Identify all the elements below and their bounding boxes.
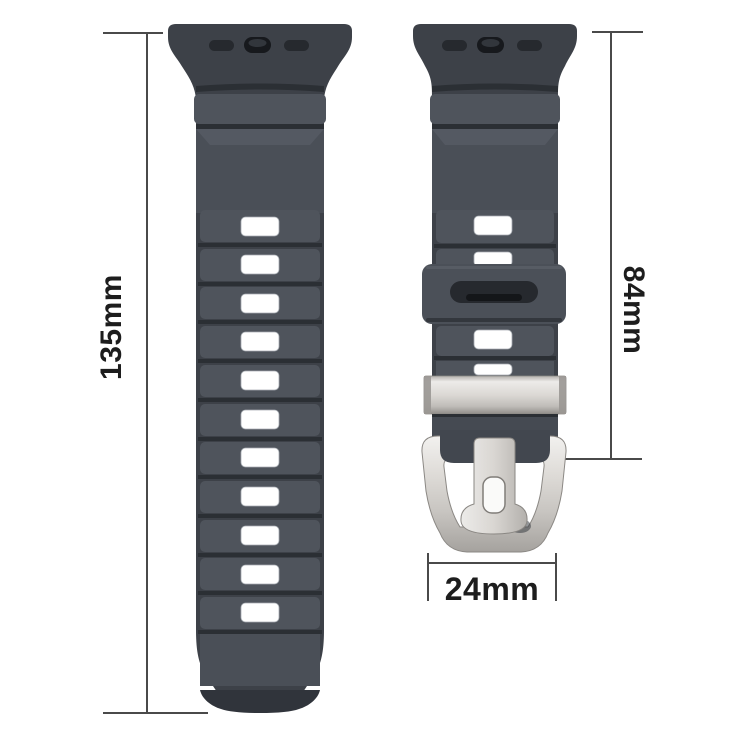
- strap-hole: [241, 255, 279, 274]
- strap-hole-partial: [474, 364, 512, 375]
- segment-groove: [434, 356, 556, 360]
- long-strap: [168, 24, 352, 713]
- rubber-keeper: [422, 264, 566, 324]
- strap-hole: [241, 565, 279, 584]
- strap-hole: [474, 330, 512, 349]
- strap-tip-edge: [200, 690, 320, 713]
- upper-panel-bevel: [196, 129, 324, 145]
- strap-hole: [241, 217, 279, 236]
- lug-slot-icon: [442, 40, 467, 51]
- long-strap-length-label: 135mm: [94, 242, 130, 412]
- strap-tip: [200, 634, 320, 686]
- segment-groove: [434, 244, 556, 248]
- metal-keeper: [424, 376, 566, 414]
- strap-hole: [474, 216, 512, 235]
- short-strap-length-label: 84mm: [615, 235, 651, 385]
- strap-hole: [241, 332, 279, 351]
- tang-slot-icon: [483, 477, 505, 513]
- band-width-label: 24mm: [412, 571, 572, 607]
- strap-hole: [241, 294, 279, 313]
- buckle: [422, 430, 566, 552]
- lug-slot-icon: [517, 40, 542, 51]
- lug-slot-icon: [284, 40, 309, 51]
- product-diagram: 135mm 84mm 24mm: [0, 0, 750, 750]
- neck-groove: [432, 124, 558, 129]
- lug-center-hole-shine: [249, 39, 267, 47]
- strap-hole: [241, 448, 279, 467]
- strap-hole-partial: [474, 252, 512, 266]
- lug-slot-icon: [209, 40, 234, 51]
- neck-ridge: [194, 94, 326, 124]
- strap-segments: [198, 210, 322, 634]
- neck-groove: [196, 124, 324, 129]
- keeper-shadow: [432, 414, 558, 417]
- upper-panel-bevel: [432, 129, 558, 145]
- short-strap: [413, 24, 577, 552]
- strap-hole: [241, 487, 279, 506]
- neck-ridge: [430, 94, 560, 124]
- strap-hole: [241, 410, 279, 429]
- strap-hole: [241, 603, 279, 622]
- strap-hole: [241, 371, 279, 390]
- strap-hole: [241, 526, 279, 545]
- lug-center-hole-shine: [482, 39, 500, 47]
